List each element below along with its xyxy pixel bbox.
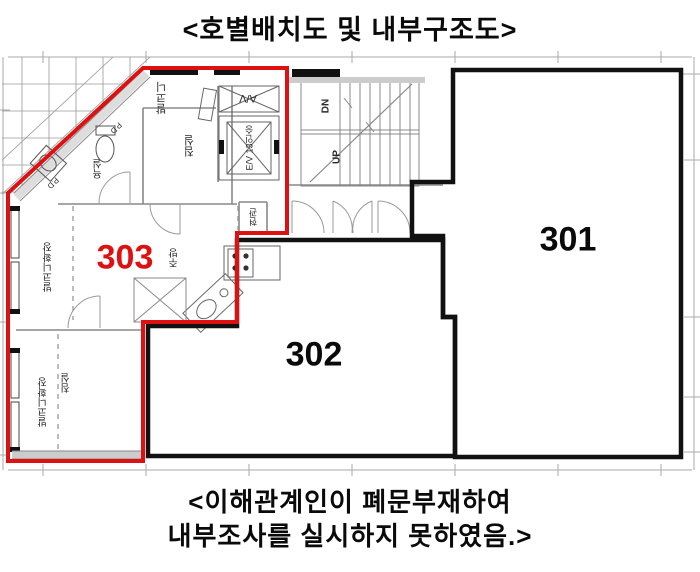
room-label-kitchen: 주방 — [168, 248, 183, 268]
stove-icon — [228, 249, 253, 277]
unit-301-outline — [412, 70, 681, 457]
kitchen-counter — [183, 246, 280, 332]
unit-301-label: 301 — [540, 221, 597, 260]
room-label-av-shaft: A/V — [239, 92, 257, 104]
room-label-elevator: E/V 13인승 — [243, 125, 256, 170]
crossed-box — [134, 278, 186, 322]
room-label-bathroom: 욕실 — [92, 159, 107, 179]
note-line-2: 내부조사를 실시하지 못하였음.> — [0, 516, 700, 553]
bottom-wall-band — [12, 451, 142, 459]
stairs — [301, 79, 419, 186]
room-label-balcony-ext-bottom: 발코니확장 — [37, 377, 52, 427]
unit-302-label: 302 — [286, 336, 343, 375]
room-label-bedroom-bottom: 침실 — [60, 373, 75, 393]
room-label-entrance: 현관 — [247, 208, 260, 226]
note-line-1: <이해관계인이 폐문부재하여 — [0, 482, 700, 519]
room-label-balcony-ext-mid: 발코니확장 — [42, 242, 57, 292]
room-label-bedroom-top: 침실 — [182, 135, 198, 157]
stair-up-label: UP — [332, 150, 343, 164]
windows — [10, 206, 20, 452]
floor-plan-document: <호별배치도 및 내부구조도> — [0, 0, 700, 572]
interior-walls — [16, 86, 443, 330]
unit-303-label: 303 — [97, 239, 154, 278]
room-label-balcony: 발코니 — [154, 82, 170, 115]
stair-dn-label: DN — [321, 99, 332, 113]
